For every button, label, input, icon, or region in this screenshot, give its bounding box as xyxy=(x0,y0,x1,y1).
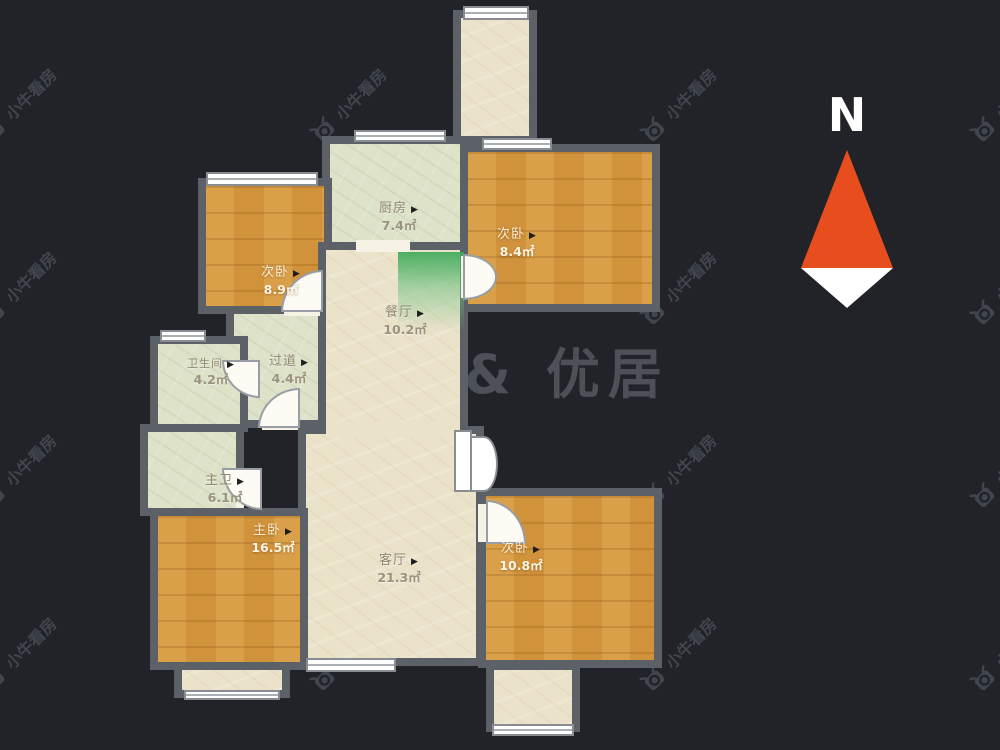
marker-icon: ▶ xyxy=(301,358,309,368)
room-area: 8.9㎡ xyxy=(261,282,301,299)
room-name: 主卧 xyxy=(253,523,281,538)
room-name: 主卫 xyxy=(205,473,233,488)
marker-icon: ▶ xyxy=(417,309,425,319)
label-bedroom-bottom-right: 次卧▶ 10.8㎡ xyxy=(499,540,542,574)
balcony-bottom xyxy=(486,662,580,732)
room-name: 卫生间 xyxy=(187,357,223,370)
room-area: 7.4㎡ xyxy=(379,218,419,235)
room-name: 次卧 xyxy=(261,265,289,280)
window-living xyxy=(306,658,396,672)
window-bedroom-left xyxy=(206,172,318,186)
label-hallway: 过道▶ 4.4㎡ xyxy=(269,353,309,387)
floor-plan-screenshot: 小牛看房 小牛看房 小牛看房 小牛看房 小牛看房 xyxy=(0,0,1000,750)
room-name: 客厅 xyxy=(379,553,407,568)
marker-icon: ▶ xyxy=(285,527,293,537)
compass-north-label: N xyxy=(792,92,902,138)
window-balcony-bottom xyxy=(492,724,574,736)
window-master-bay xyxy=(184,690,280,700)
window-kitchen xyxy=(354,130,446,142)
label-dining: 餐厅▶ 10.2㎡ xyxy=(383,304,426,338)
room-area: 21.3㎡ xyxy=(377,570,420,587)
room-name: 次卧 xyxy=(497,227,525,242)
window-balcony-top xyxy=(463,6,529,20)
room-area: 4.4㎡ xyxy=(269,371,309,388)
label-bedroom-left: 次卧▶ 8.9㎡ xyxy=(261,264,301,298)
room-area: 8.4㎡ xyxy=(497,244,537,261)
marker-icon: ▶ xyxy=(533,545,541,555)
compass-arrow-icon xyxy=(799,148,895,312)
marker-icon: ▶ xyxy=(227,360,235,370)
room-area: 16.5㎡ xyxy=(251,540,294,557)
room-area: 6.1㎡ xyxy=(205,490,245,507)
room-name: 过道 xyxy=(269,354,297,369)
marker-icon: ▶ xyxy=(293,269,301,279)
room-area: 10.2㎡ xyxy=(383,322,426,339)
room-name: 厨房 xyxy=(379,201,407,216)
living-room-join xyxy=(326,422,460,438)
kitchen-opening xyxy=(356,240,410,252)
marker-icon: ▶ xyxy=(411,557,419,567)
bay-window xyxy=(470,436,498,492)
label-bedroom-top-right: 次卧▶ 8.4㎡ xyxy=(497,226,537,260)
label-kitchen: 厨房▶ 7.4㎡ xyxy=(379,200,419,234)
label-master-bedroom: 主卧▶ 16.5㎡ xyxy=(251,522,294,556)
marker-icon: ▶ xyxy=(411,205,419,215)
room-area: 4.2㎡ xyxy=(187,372,235,389)
room-name: 次卧 xyxy=(501,541,529,556)
label-bathroom: 卫生间▶ 4.2㎡ xyxy=(187,357,235,389)
label-master-bathroom: 主卫▶ 6.1㎡ xyxy=(205,472,245,506)
room-name: 餐厅 xyxy=(385,305,413,320)
label-living-room: 客厅▶ 21.3㎡ xyxy=(377,552,420,586)
room-area: 10.8㎡ xyxy=(499,558,542,575)
balcony-top xyxy=(453,10,537,144)
marker-icon: ▶ xyxy=(529,231,537,241)
window-bathroom xyxy=(160,330,206,342)
compass: N xyxy=(792,92,902,316)
window-bedroom-top-right xyxy=(482,138,552,150)
marker-icon: ▶ xyxy=(237,477,245,487)
